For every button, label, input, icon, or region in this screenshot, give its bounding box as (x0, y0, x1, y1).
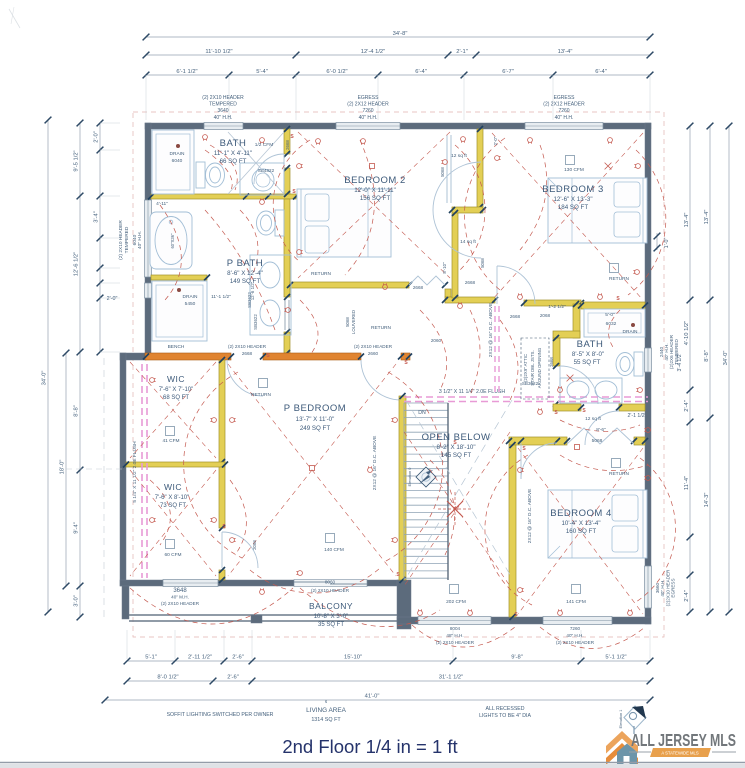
svg-text:4'-11": 4'-11" (156, 201, 168, 207)
svg-text:BEDROOM 2: BEDROOM 2 (344, 175, 406, 186)
svg-text:34'-0": 34'-0" (723, 351, 729, 366)
svg-text:55 SQ FT: 55 SQ FT (574, 359, 601, 366)
svg-text:8'-2" X 18'-10": 8'-2" X 18'-10" (436, 444, 475, 451)
svg-text:A STATEWIDE MLS: A STATEWIDE MLS (661, 751, 699, 756)
svg-text:(2) 2X10 HEADER: (2) 2X10 HEADER (436, 640, 475, 645)
svg-text:SOFFIT LIGHTING SWITCHED PER O: SOFFIT LIGHTING SWITCHED PER OWNER (167, 712, 274, 718)
svg-text:7260: 7260 (570, 626, 581, 631)
svg-text:BEDROOM 3: BEDROOM 3 (542, 184, 604, 195)
svg-text:BENCH: BENCH (168, 344, 185, 350)
svg-text:11'-1 1/2": 11'-1 1/2" (211, 294, 231, 300)
svg-text:2668: 2668 (413, 285, 424, 290)
svg-text:SB3622: SB3622 (522, 381, 539, 386)
svg-text:249 SQ FT: 249 SQ FT (300, 425, 330, 432)
svg-text:BEDROOM 4: BEDROOM 4 (550, 508, 612, 519)
svg-text:RETURN: RETURN (371, 325, 392, 331)
svg-text:12'-6 1/2": 12'-6 1/2" (250, 281, 255, 300)
svg-text:(2) 2X12 HEADER: (2) 2X12 HEADER (347, 102, 389, 108)
svg-text:P BATH: P BATH (227, 258, 263, 269)
svg-text:13'-4": 13'-4" (558, 49, 573, 55)
svg-text:11'-4": 11'-4" (684, 476, 690, 490)
svg-text:8'-0 1/2": 8'-0 1/2" (157, 675, 178, 681)
svg-text:13'-7" X 11'-0": 13'-7" X 11'-0" (296, 416, 335, 423)
svg-text:9'-4": 9'-4" (74, 522, 80, 534)
svg-text:BATH: BATH (220, 138, 247, 149)
svg-text:40" H.H.: 40" H.H. (555, 115, 574, 121)
svg-text:P BEDROOM: P BEDROOM (284, 403, 346, 414)
svg-text:(2) 2X10 HEADER: (2) 2X10 HEADER (556, 640, 595, 645)
svg-text:12 sq ft: 12 sq ft (585, 416, 601, 422)
svg-text:6'-4": 6'-4" (415, 69, 427, 75)
svg-text:2'-6": 2'-6" (227, 675, 239, 681)
svg-text:73 SQ FT: 73 SQ FT (160, 503, 186, 509)
svg-text:35 SQ FT: 35 SQ FT (318, 622, 344, 628)
svg-text:41'-0": 41'-0" (365, 694, 380, 700)
svg-text:DN: DN (418, 410, 426, 416)
svg-text:34'-0": 34'-0" (42, 371, 48, 386)
svg-text:(2) 2X10 HEADER: (2) 2X10 HEADER (161, 601, 200, 606)
svg-text:Elevation 0: Elevation 0 (408, 468, 412, 487)
svg-text:14'-3": 14'-3" (704, 493, 710, 508)
svg-text:6'-1 1/2": 6'-1 1/2" (176, 69, 197, 75)
svg-text:DRAIN: DRAIN (170, 151, 185, 157)
svg-text:7'-6" X 8'-10": 7'-6" X 8'-10" (155, 495, 190, 501)
svg-text:5'-4": 5'-4" (256, 69, 268, 75)
svg-text:149 SQ FT: 149 SQ FT (230, 278, 260, 285)
svg-text:15'-10": 15'-10" (344, 655, 362, 661)
svg-text:11'-1" X 4'-11": 11'-1" X 4'-11" (214, 150, 252, 157)
svg-text:130 CFM: 130 CFM (564, 167, 584, 173)
svg-text:10'-4" X 13'-4": 10'-4" X 13'-4" (561, 520, 600, 527)
svg-text:LIVING AREA: LIVING AREA (306, 707, 347, 714)
svg-text:40" H.H.: 40" H.H. (359, 115, 378, 121)
svg-text:48" H.H.: 48" H.H. (446, 633, 463, 638)
svg-text:5450: 5450 (185, 301, 196, 307)
svg-text:2'-0": 2'-0" (107, 296, 118, 302)
svg-text:BALCONY: BALCONY (309, 601, 353, 611)
svg-text:WIC: WIC (167, 374, 185, 384)
svg-text:13'-4": 13'-4" (704, 210, 710, 225)
svg-text:60 CFM: 60 CFM (164, 552, 181, 558)
svg-text:6032: 6032 (606, 321, 617, 327)
svg-text:8'-8": 8'-8" (704, 350, 710, 362)
svg-text:(2) 2X12 HEADER: (2) 2X12 HEADER (543, 102, 585, 108)
svg-text:RETURN: RETURN (311, 271, 332, 277)
svg-text:1/2 CFM: 1/2 CFM (255, 142, 273, 148)
svg-text:RETURN: RETURN (609, 471, 630, 477)
svg-text:7260: 7260 (362, 108, 373, 114)
svg-text:145 SQ FT: 145 SQ FT (441, 452, 471, 459)
svg-text:160 SQ FT: 160 SQ FT (566, 528, 596, 535)
svg-text:140 CFM: 140 CFM (324, 547, 344, 553)
svg-text:6'-7": 6'-7" (502, 69, 514, 75)
svg-text:4'-10 1/2": 4'-10 1/2" (684, 321, 690, 345)
svg-text:2nd Floor 1/4 in = 1 ft: 2nd Floor 1/4 in = 1 ft (282, 736, 457, 757)
svg-text:(2) 2X10 HEADER: (2) 2X10 HEADER (228, 344, 267, 349)
svg-text:(2) 2X10 HEADER: (2) 2X10 HEADER (118, 220, 124, 260)
svg-text:6'-0 1/2": 6'-0 1/2" (326, 69, 347, 75)
svg-text:2'-11 1/2": 2'-11 1/2" (188, 655, 212, 661)
svg-text:40" H.H.: 40" H.H. (214, 115, 233, 121)
svg-text:DRAIN: DRAIN (623, 329, 638, 335)
svg-text:8'-10": 8'-10" (442, 262, 447, 274)
svg-text:41 CFM: 41 CFM (162, 438, 179, 444)
svg-text:ALL RECESSED: ALL RECESSED (485, 706, 524, 712)
svg-text:2X12 @ 16" O.C. ABOVE: 2X12 @ 16" O.C. ABOVE (527, 489, 533, 544)
svg-text:12'-4 1/2": 12'-4 1/2" (361, 49, 385, 55)
svg-text:2'-0": 2'-0" (493, 136, 498, 145)
svg-text:WIC: WIC (164, 482, 182, 492)
svg-text:EGRESS: EGRESS (671, 578, 676, 597)
svg-text:8060: 8060 (325, 580, 336, 585)
svg-text:2668: 2668 (465, 280, 476, 285)
svg-text:LIGHTS TO BE 4" DIA: LIGHTS TO BE 4" DIA (479, 713, 531, 719)
svg-text:66 SQ FT: 66 SQ FT (220, 158, 247, 165)
svg-text:2660: 2660 (368, 351, 379, 356)
svg-text:(2) 2X10 HEADER: (2) 2X10 HEADER (311, 588, 350, 593)
svg-text:8'-8": 8'-8" (74, 405, 80, 417)
svg-text:5'-1": 5'-1" (145, 655, 157, 661)
svg-text:8'-6" X 12'-4": 8'-6" X 12'-4" (227, 270, 263, 277)
svg-text:2068: 2068 (252, 540, 257, 550)
svg-text:ALL JERSEY MLS: ALL JERSEY MLS (631, 730, 736, 750)
svg-text:5068: 5068 (345, 317, 350, 327)
svg-text:3'-0": 3'-0" (74, 595, 80, 607)
svg-text:2668: 2668 (242, 351, 253, 356)
svg-text:12'-0" X 11'-11": 12'-0" X 11'-11" (354, 187, 396, 194)
svg-text:2'-4": 2'-4" (684, 590, 690, 602)
svg-text:Elevation 1: Elevation 1 (619, 710, 623, 729)
svg-text:OPEN BELOW: OPEN BELOW (422, 432, 491, 443)
svg-text:2668: 2668 (285, 140, 290, 150)
svg-text:68 SQ FT: 68 SQ FT (163, 395, 189, 401)
svg-text:202 CFM: 202 CFM (446, 599, 466, 605)
svg-text:156 SQ FT: 156 SQ FT (360, 195, 390, 202)
svg-text:12'-6" X 13'-3": 12'-6" X 13'-3" (553, 196, 592, 203)
svg-text:1'-2 1/2": 1'-2 1/2" (548, 304, 566, 310)
svg-text:13'-4": 13'-4" (684, 213, 690, 228)
svg-text:1314 SQ FT: 1314 SQ FT (311, 717, 341, 723)
svg-text:7260: 7260 (558, 108, 569, 114)
svg-text:3'-4": 3'-4" (94, 211, 100, 223)
svg-text:5068: 5068 (440, 167, 445, 177)
svg-text:40" H.H.: 40" H.H. (566, 633, 583, 638)
svg-text:TEMPERED: TEMPERED (209, 102, 237, 108)
svg-text:184 SQ FT: 184 SQ FT (558, 204, 588, 211)
svg-text:2668: 2668 (510, 314, 521, 319)
svg-text:LOUVERED: LOUVERED (351, 310, 356, 334)
svg-text:EGRESS: EGRESS (358, 95, 380, 101)
svg-text:5068: 5068 (592, 438, 603, 444)
svg-text:2X12 @ 16" O.C. ABOVE: 2X12 @ 16" O.C. ABOVE (488, 303, 494, 358)
svg-text:6040: 6040 (172, 158, 183, 164)
svg-text:RETURN: RETURN (251, 392, 272, 398)
svg-text:11'-10 1/2": 11'-10 1/2" (205, 49, 232, 55)
svg-text:2'-4": 2'-4" (684, 400, 690, 412)
svg-text:DRAIN: DRAIN (183, 294, 198, 300)
svg-text:12'-6 1/2": 12'-6 1/2" (74, 252, 80, 276)
svg-text:18'-0": 18'-0" (60, 460, 66, 475)
svg-text:8004: 8004 (450, 626, 461, 631)
svg-text:2'-1": 2'-1" (456, 49, 468, 55)
svg-text:(2)2X9" ATTIC: (2)2X9" ATTIC (523, 354, 528, 382)
svg-text:7'-6" X 7'-10": 7'-6" X 7'-10" (159, 387, 194, 393)
svg-text:9'-5 1/2": 9'-5 1/2" (74, 150, 80, 171)
svg-text:8'-5" X 8'-0": 8'-5" X 8'-0" (572, 351, 604, 358)
svg-text:2'-6": 2'-6" (232, 655, 244, 661)
svg-text:12 sq ft: 12 sq ft (451, 153, 467, 159)
svg-text:2668: 2668 (549, 357, 554, 367)
svg-text:2'-1 1/2": 2'-1 1/2" (628, 413, 647, 419)
svg-text:2060: 2060 (431, 338, 442, 343)
svg-text:5'-1 1/2": 5'-1 1/2" (605, 655, 626, 661)
svg-text:5068: 5068 (480, 258, 485, 268)
svg-text:6'-4": 6'-4" (595, 69, 607, 75)
svg-text:TEMPERED: TEMPERED (124, 226, 130, 253)
svg-text:34'-8": 34'-8" (393, 31, 408, 37)
svg-text:1'-0": 1'-0" (664, 238, 670, 249)
svg-text:31'-1 1/2": 31'-1 1/2" (439, 675, 463, 681)
svg-text:SB4822: SB4822 (258, 168, 275, 173)
svg-text:2X12 @ 16" O.C. ABOVE: 2X12 @ 16" O.C. ABOVE (372, 436, 378, 491)
svg-text:3640: 3640 (217, 108, 228, 114)
svg-text:2'-0": 2'-0" (94, 131, 100, 143)
svg-text:(2) 2X10 HEADER: (2) 2X10 HEADER (354, 344, 393, 349)
svg-text:3648: 3648 (173, 588, 187, 594)
svg-text:14 sq ft: 14 sq ft (460, 239, 476, 245)
svg-text:8'-6": 8'-6" (596, 427, 606, 433)
svg-text:3'-4 1/2": 3'-4 1/2" (677, 352, 683, 371)
svg-text:9'-8": 9'-8" (511, 655, 523, 661)
svg-text:2068: 2068 (540, 313, 551, 318)
svg-text:RETURN: RETURN (609, 276, 630, 282)
svg-text:60"X36": 60"X36" (170, 233, 175, 249)
svg-text:EGRESS: EGRESS (554, 95, 576, 101)
svg-text:40" M.H.: 40" M.H. (171, 595, 189, 600)
svg-text:141 CFM: 141 CFM (566, 599, 586, 605)
svg-text:10'-8" X 3'-0": 10'-8" X 3'-0" (314, 614, 349, 620)
svg-text:(2) 2X10 HEADER: (2) 2X10 HEADER (202, 95, 244, 101)
svg-text:BATH: BATH (577, 339, 604, 350)
svg-text:SB3622: SB3622 (253, 314, 258, 330)
svg-text:40" H.H.: 40" H.H. (137, 231, 143, 249)
